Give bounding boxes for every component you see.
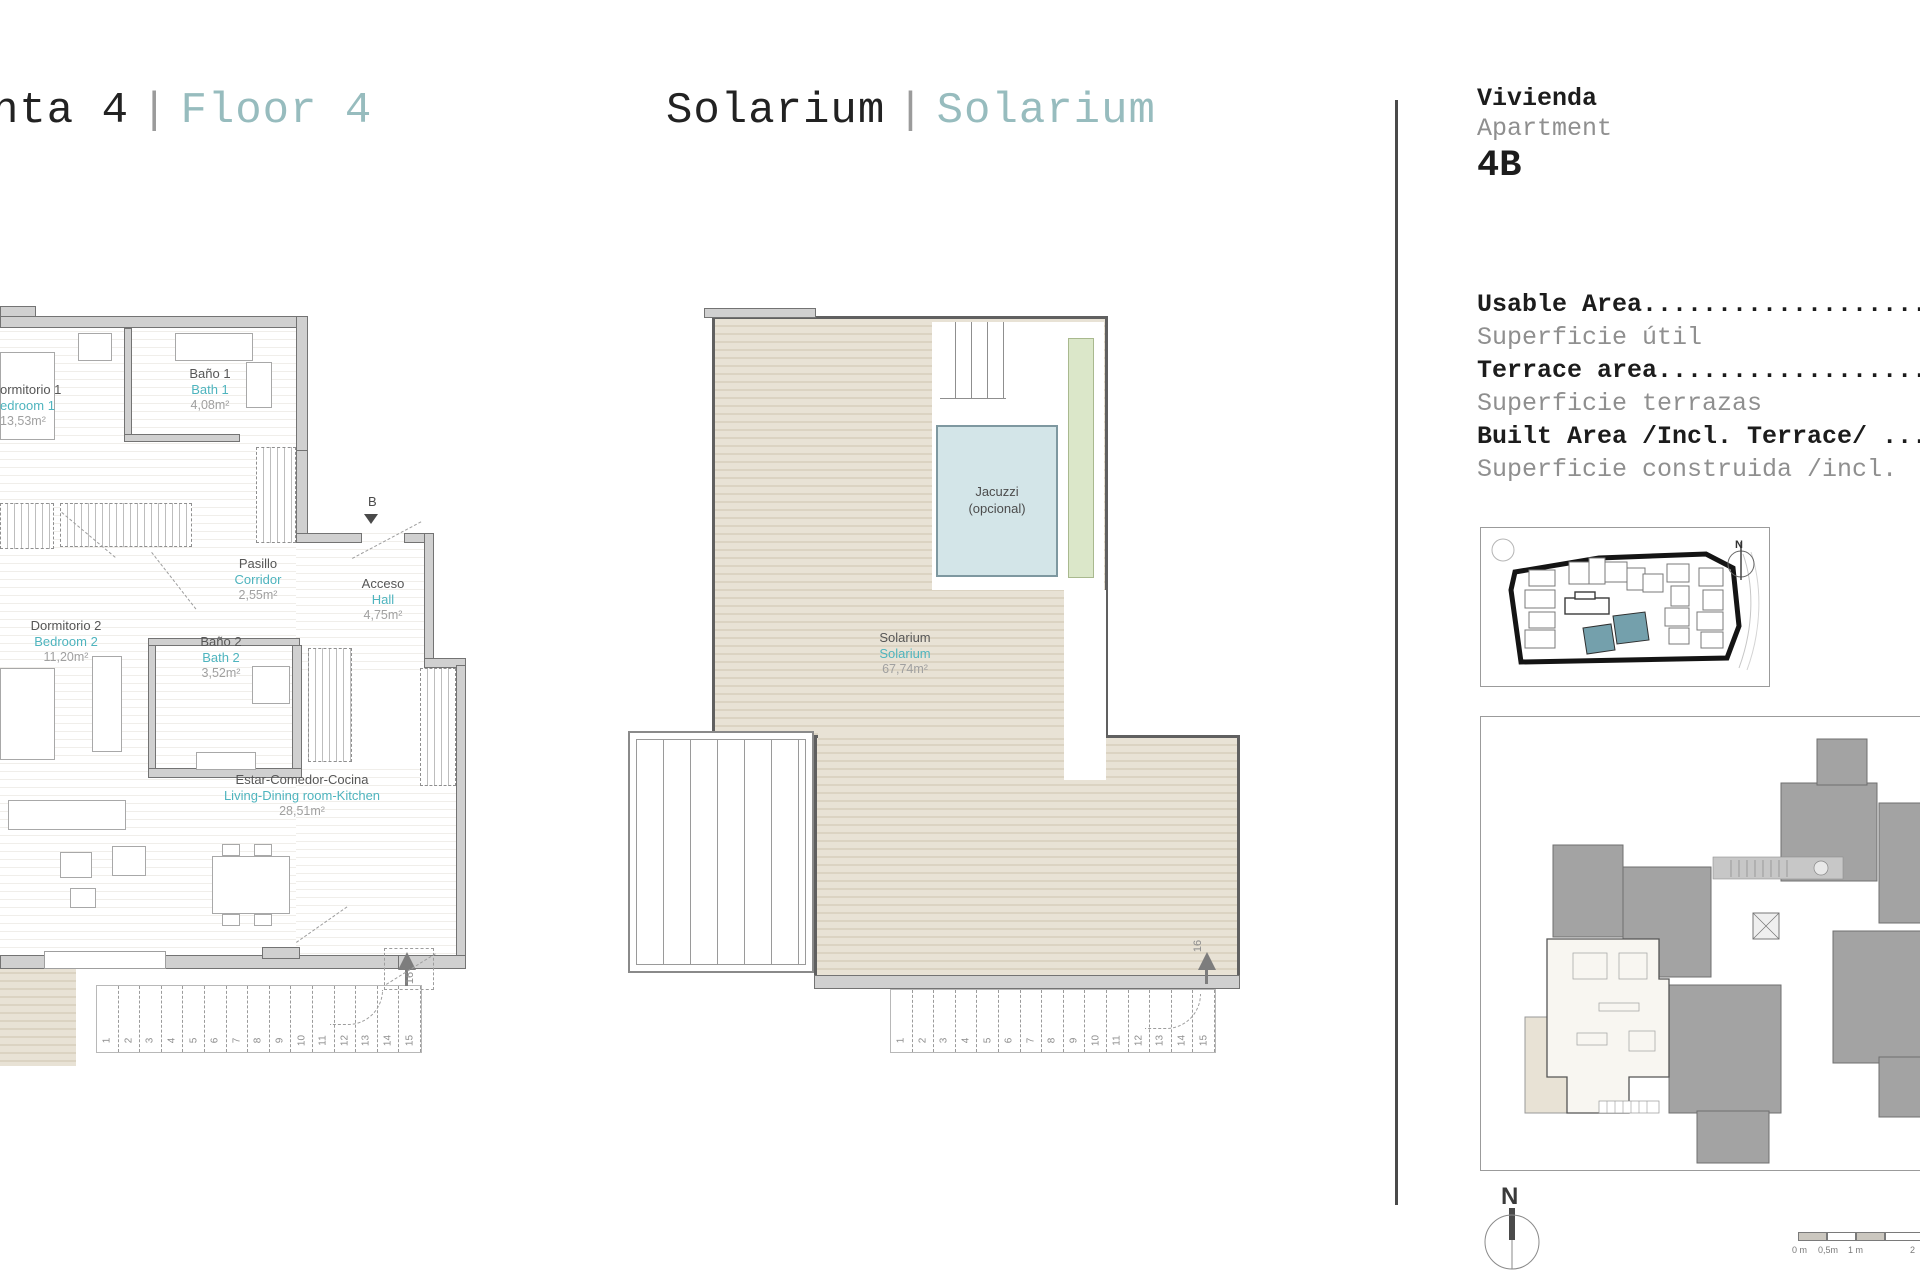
terrace-area-label: Terrace area............................ bbox=[1477, 354, 1920, 387]
pergola-slats bbox=[636, 739, 806, 965]
site-map-drawing: N bbox=[1481, 528, 1769, 686]
stair-tread: 15 bbox=[399, 986, 421, 1052]
room-area: 2,55m² bbox=[200, 588, 316, 603]
room-label-bedroom1: ormitorio 1 edroom 1 13,53m² bbox=[0, 382, 61, 429]
compass: N bbox=[1477, 1182, 1547, 1283]
jacuzzi-label-line1: Jacuzzi bbox=[968, 484, 1025, 501]
chair bbox=[222, 914, 240, 926]
stair-number: 1 bbox=[896, 1038, 907, 1044]
solarium-title-es: Solarium bbox=[666, 86, 885, 136]
floor-title: nta 4|Floor 4 bbox=[0, 86, 372, 136]
wardrobe bbox=[256, 447, 296, 543]
floor-title-separator: | bbox=[141, 86, 168, 136]
side-strip bbox=[1064, 590, 1106, 780]
solarium-plan: Jacuzzi (opcional) 123456789101112131415… bbox=[600, 300, 1260, 1080]
stair-tread: 2 bbox=[913, 990, 935, 1052]
unit-number: 4B bbox=[1477, 144, 1612, 188]
room-name-es: Acceso bbox=[330, 576, 436, 592]
coffee-table bbox=[70, 888, 96, 908]
stair-tread: 9 bbox=[270, 986, 292, 1052]
stair-number: 7 bbox=[1025, 1038, 1036, 1044]
wall bbox=[124, 434, 240, 442]
stair-tread: 1 bbox=[891, 990, 913, 1052]
stair-number: 11 bbox=[1112, 1035, 1123, 1045]
room-name-en: Bedroom 2 bbox=[4, 634, 128, 650]
superficie-terrazas-label: Superficie terrazas bbox=[1477, 387, 1920, 420]
stair-number: 3 bbox=[939, 1038, 950, 1044]
stair-tread: 10 bbox=[1085, 990, 1107, 1052]
overview-plan bbox=[1480, 716, 1920, 1171]
room-name-es: ormitorio 1 bbox=[0, 382, 61, 398]
room-label-living: Estar-Comedor-Cocina Living-Dining room-… bbox=[212, 772, 392, 819]
scale-segment bbox=[1798, 1232, 1827, 1241]
stair-number: 12 bbox=[339, 1035, 350, 1046]
wall bbox=[814, 975, 1240, 989]
stair-number: 3 bbox=[145, 1038, 156, 1044]
chair bbox=[222, 844, 240, 856]
stair-tread: 11 bbox=[1107, 990, 1129, 1052]
floor-title-en: Floor 4 bbox=[180, 86, 372, 136]
room-area: 11,20m² bbox=[4, 650, 128, 665]
scale-label: 1 m bbox=[1848, 1245, 1863, 1255]
room-name-en: edroom 1 bbox=[0, 398, 61, 414]
stair-number: 2 bbox=[123, 1038, 134, 1044]
stair-tread: 3 bbox=[934, 990, 956, 1052]
superficie-construida-label: Superficie construida /incl. bbox=[1477, 453, 1920, 486]
room-name-en: Solarium bbox=[845, 646, 965, 662]
site-map-north-label: N bbox=[1735, 539, 1743, 551]
wall bbox=[262, 947, 300, 959]
room-label-bath1: Baño 1 Bath 1 4,08m² bbox=[152, 366, 268, 413]
stair-number: 4 bbox=[961, 1038, 972, 1044]
room-name-es: Baño 1 bbox=[152, 366, 268, 382]
jacuzzi-label-line2: (opcional) bbox=[968, 501, 1025, 518]
stair-arrow-stem bbox=[1205, 970, 1208, 984]
room-area: 67,74m² bbox=[845, 662, 965, 677]
scale-bar: 0 m 0,5m 1 m 2 bbox=[1798, 1232, 1920, 1260]
stair-up-arrow-icon bbox=[1198, 952, 1216, 970]
closet bbox=[78, 333, 112, 361]
stair-number: 5 bbox=[982, 1038, 993, 1044]
stair-number: 2 bbox=[917, 1038, 928, 1044]
stair-tread: 2 bbox=[119, 986, 141, 1052]
wall bbox=[148, 645, 156, 775]
overview-plan-drawing bbox=[1481, 717, 1920, 1170]
stair-tread: 4 bbox=[956, 990, 978, 1052]
scale-segment bbox=[1885, 1232, 1920, 1241]
floor4-plan: B ormitorio 1 edroom 1 13,53m² Baño 1 Ba… bbox=[0, 300, 470, 1080]
shower bbox=[196, 752, 256, 770]
jacuzzi: Jacuzzi (opcional) bbox=[936, 425, 1058, 577]
scale-segment bbox=[1856, 1232, 1885, 1241]
unit-block: Vivienda Apartment 4B bbox=[1477, 84, 1612, 188]
room-name-en: Corridor bbox=[200, 572, 316, 588]
wall bbox=[124, 328, 132, 440]
stair-number: 13 bbox=[361, 1035, 372, 1046]
stair-tread: 7 bbox=[227, 986, 249, 1052]
section-marker-arrow-icon bbox=[364, 514, 378, 524]
superficie-util-label: Superficie útil bbox=[1477, 321, 1920, 354]
wall bbox=[296, 316, 308, 452]
site-map: N bbox=[1480, 527, 1770, 687]
stair-number: 9 bbox=[275, 1038, 286, 1044]
stair-landing-number: 16 bbox=[1192, 940, 1204, 952]
chair bbox=[254, 914, 272, 926]
stair-number: 1 bbox=[102, 1038, 113, 1044]
stair-number: 14 bbox=[383, 1035, 394, 1046]
wardrobe bbox=[420, 668, 456, 786]
room-name-en: Hall bbox=[330, 592, 436, 608]
stair-number: 8 bbox=[1047, 1038, 1058, 1044]
stair-tread: 1 bbox=[97, 986, 119, 1052]
stair-number: 14 bbox=[1177, 1035, 1188, 1046]
scale-segment bbox=[1827, 1232, 1856, 1241]
stair-number: 11 bbox=[318, 1035, 329, 1045]
living-window bbox=[44, 951, 166, 969]
room-area: 13,53m² bbox=[0, 414, 61, 429]
sofa bbox=[8, 800, 126, 830]
room-name-es: Pasillo bbox=[200, 556, 316, 572]
stair-number: 15 bbox=[1198, 1035, 1209, 1046]
wall bbox=[0, 316, 306, 328]
deck-junction bbox=[818, 732, 1104, 744]
areas-block: Usable Area.............................… bbox=[1477, 288, 1920, 486]
dining-table bbox=[212, 856, 290, 914]
wall bbox=[456, 665, 466, 965]
room-name-es: Estar-Comedor-Cocina bbox=[212, 772, 392, 788]
room-area: 4,75m² bbox=[330, 608, 436, 623]
stair-tread: 3 bbox=[140, 986, 162, 1052]
scale-label: 2 bbox=[1910, 1245, 1915, 1255]
stair-tread: 8 bbox=[248, 986, 270, 1052]
apartment-label: Apartment bbox=[1477, 114, 1612, 144]
stair-tread: 9 bbox=[1064, 990, 1086, 1052]
armchair bbox=[112, 846, 146, 876]
wall bbox=[296, 450, 308, 542]
stair-tread: 10 bbox=[291, 986, 313, 1052]
stair-tread: 7 bbox=[1021, 990, 1043, 1052]
floor4-terrace-deck bbox=[0, 966, 76, 1066]
closet bbox=[92, 656, 122, 752]
planter bbox=[1068, 338, 1094, 578]
pergola bbox=[628, 731, 814, 973]
stair-number: 15 bbox=[404, 1035, 415, 1046]
room-label-bedroom2: Dormitorio 2 Bedroom 2 11,20m² bbox=[4, 618, 128, 665]
solarium-title-en: Solarium bbox=[937, 86, 1156, 136]
room-area: 4,08m² bbox=[152, 398, 268, 413]
floor-title-es: nta 4 bbox=[0, 86, 129, 136]
stair-number: 5 bbox=[188, 1038, 199, 1044]
wall bbox=[704, 308, 816, 318]
solarium-title: Solarium|Solarium bbox=[666, 86, 1156, 136]
vertical-divider bbox=[1395, 100, 1398, 1205]
stair-tread: 8 bbox=[1042, 990, 1064, 1052]
compass-north-label: N bbox=[1501, 1183, 1518, 1210]
stair-number: 6 bbox=[210, 1038, 221, 1044]
stair-tread: 4 bbox=[162, 986, 184, 1052]
room-label-corridor: Pasillo Corridor 2,55m² bbox=[200, 556, 316, 603]
stair-number: 10 bbox=[1090, 1035, 1101, 1046]
stair-number: 10 bbox=[296, 1035, 307, 1046]
wall bbox=[296, 533, 362, 543]
stair-tread: 5 bbox=[977, 990, 999, 1052]
stair-number: 9 bbox=[1069, 1038, 1080, 1044]
bed bbox=[0, 668, 55, 760]
wardrobe bbox=[0, 503, 54, 549]
stair-number: 7 bbox=[231, 1038, 242, 1044]
stair-tread: 6 bbox=[999, 990, 1021, 1052]
stair-number: 12 bbox=[1133, 1035, 1144, 1046]
wall bbox=[292, 645, 302, 775]
stair-number: 13 bbox=[1155, 1035, 1166, 1046]
room-name-en: Bath 2 bbox=[166, 650, 276, 666]
room-name-en: Bath 1 bbox=[152, 382, 268, 398]
wardrobe bbox=[308, 648, 352, 762]
room-area: 28,51m² bbox=[212, 804, 392, 819]
room-name-en: Living-Dining room-Kitchen bbox=[212, 788, 392, 804]
bathtub bbox=[175, 333, 253, 361]
scale-label: 0,5m bbox=[1818, 1245, 1838, 1255]
room-area: 3,52m² bbox=[166, 666, 276, 681]
room-label-solarium: Solarium Solarium 67,74m² bbox=[845, 630, 965, 677]
compass-icon: N bbox=[1477, 1182, 1547, 1278]
built-area-label: Built Area /Incl. Terrace/ ............. bbox=[1477, 420, 1920, 453]
stair-landing-number: 16 bbox=[404, 972, 416, 984]
solarium-lower-deck bbox=[814, 735, 1240, 987]
usable-area-label: Usable Area............................. bbox=[1477, 288, 1920, 321]
room-name-es: Solarium bbox=[845, 630, 965, 646]
scale-label: 0 m bbox=[1792, 1245, 1807, 1255]
vivienda-label: Vivienda bbox=[1477, 84, 1612, 114]
stair-tread: 6 bbox=[205, 986, 227, 1052]
stair-number: 4 bbox=[167, 1038, 178, 1044]
roof-stairs bbox=[940, 322, 1006, 399]
stair-number: 8 bbox=[253, 1038, 264, 1044]
room-label-hall: Acceso Hall 4,75m² bbox=[330, 576, 436, 623]
stair-tread: 5 bbox=[183, 986, 205, 1052]
armchair bbox=[60, 852, 92, 878]
chair bbox=[254, 844, 272, 856]
room-name-es: Baño 2 bbox=[166, 634, 276, 650]
section-marker-label: B bbox=[368, 494, 377, 509]
stair-number: 6 bbox=[1004, 1038, 1015, 1044]
solarium-title-separator: | bbox=[897, 86, 924, 136]
room-label-bath2: Baño 2 Bath 2 3,52m² bbox=[166, 634, 276, 681]
room-name-es: Dormitorio 2 bbox=[4, 618, 128, 634]
wardrobe bbox=[60, 503, 192, 547]
